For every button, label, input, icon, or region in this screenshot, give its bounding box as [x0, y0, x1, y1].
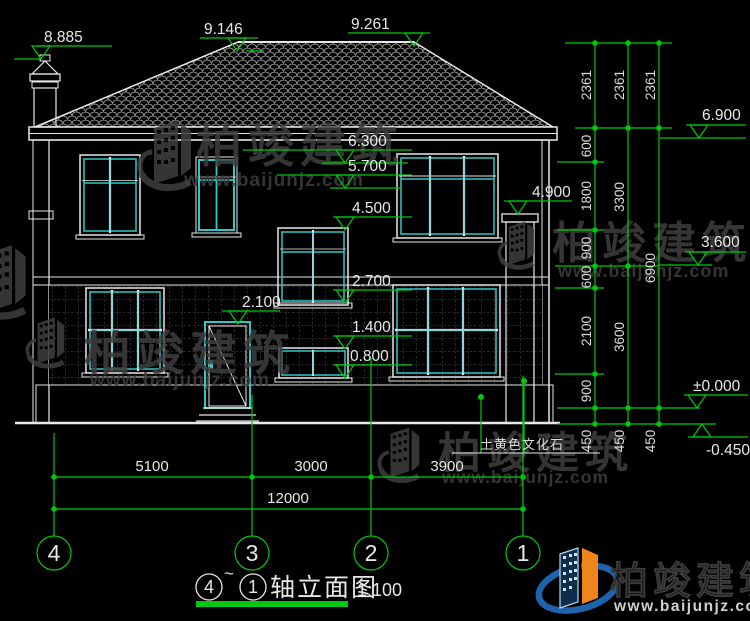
window-2f-left [76, 155, 144, 239]
svg-text:6900: 6900 [643, 253, 658, 283]
elevation-mark-chimney-top: 8.885 [14, 29, 112, 59]
floor-belt [33, 277, 549, 285]
elevation-mark-ground-floor: ±0.000 [684, 378, 748, 408]
svg-text:6.900: 6.900 [702, 107, 741, 124]
watermark-logo-icon [0, 245, 26, 316]
dim-3900: 3900 [430, 458, 463, 475]
brand-logo: 柏竣建筑 www.baijunjz.com [534, 547, 750, 618]
elevation-mark-right-chimney-top: 4.900 [504, 184, 572, 214]
dim-12000: 12000 [267, 490, 309, 507]
svg-text:土黄色文化石: 土黄色文化石 [480, 437, 564, 452]
watermark-url: www.baijunjz.com [89, 370, 270, 391]
svg-text:3600: 3600 [612, 322, 627, 352]
axis-4: 4 [48, 540, 61, 566]
elevation-mark-eave-right: 6.900 [660, 107, 746, 138]
svg-text:3300: 3300 [612, 182, 627, 212]
svg-text:450: 450 [612, 430, 627, 453]
svg-text:0.800: 0.800 [350, 348, 389, 365]
svg-text:5.700: 5.700 [348, 158, 387, 175]
svg-text:2100: 2100 [579, 316, 594, 346]
svg-text:900: 900 [579, 237, 594, 260]
dim-3000: 3000 [294, 458, 327, 475]
roof [35, 42, 553, 127]
left-pilaster [33, 140, 49, 423]
elevation-drawing-canvas: 柏竣建筑 www.baijunjz.com 柏竣建筑 www.baijunjz.… [0, 0, 750, 621]
svg-text:9.146: 9.146 [204, 21, 243, 38]
dim-5100: 5100 [135, 458, 168, 475]
svg-text:600: 600 [579, 266, 594, 289]
cad-drawing: 柏竣建筑 www.baijunjz.com 柏竣建筑 www.baijunjz.… [0, 0, 750, 621]
svg-text:-0.450: -0.450 [706, 442, 750, 459]
svg-text:9.261: 9.261 [351, 16, 390, 33]
svg-text:2.100: 2.100 [242, 294, 281, 311]
svg-text:900: 900 [579, 380, 594, 403]
svg-text:450: 450 [579, 430, 594, 453]
svg-text:3.600: 3.600 [701, 234, 740, 251]
axis-1: 1 [517, 540, 530, 566]
svg-text:4.500: 4.500 [352, 200, 391, 217]
svg-text:2361: 2361 [579, 70, 594, 100]
left-chimney [30, 55, 60, 127]
svg-text:6.300: 6.300 [348, 133, 387, 150]
axis-bubbles: 4 3 2 1 [37, 536, 540, 570]
drawing-scale: 1:100 [357, 580, 402, 600]
logo-brand-text: 柏竣建筑 [610, 561, 750, 603]
svg-text:2361: 2361 [612, 70, 627, 100]
svg-text:2.700: 2.700 [352, 273, 391, 290]
elevation-mark-outdoor-ground: -0.450 [688, 424, 750, 459]
logo-building-orange [582, 548, 598, 604]
axis-2: 2 [365, 540, 378, 566]
axis-3: 3 [246, 540, 259, 566]
watermark-logo-icon [379, 428, 419, 481]
svg-text:1.400: 1.400 [352, 319, 391, 336]
title-from-axis: 4 [204, 577, 214, 597]
svg-text:±0.000: ±0.000 [693, 378, 741, 395]
svg-text:450: 450 [643, 430, 658, 453]
svg-text:1800: 1800 [579, 181, 594, 211]
title-tilde: ~ [224, 564, 234, 583]
watermark-logo-icon [499, 221, 534, 267]
title-underline [196, 601, 348, 607]
svg-text:8.885: 8.885 [44, 29, 83, 46]
title-to-axis: 1 [248, 577, 258, 597]
svg-text:600: 600 [579, 135, 594, 158]
svg-text:2361: 2361 [643, 70, 658, 100]
door-steps [196, 408, 259, 421]
svg-text:4.900: 4.900 [532, 184, 571, 201]
elevation-mark-stair-window-top: 4.500 [333, 200, 412, 230]
window-2f-right [393, 154, 502, 242]
logo-url-text: www.baijunjz.com [613, 598, 750, 615]
